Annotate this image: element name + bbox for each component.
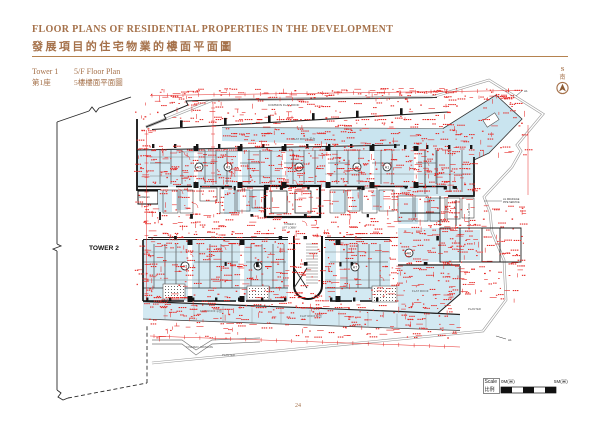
svg-text:COMMON FLAT ROOF: COMMON FLAT ROOF (468, 202, 471, 228)
svg-text:FLAT ROOF: FLAT ROOF (412, 289, 429, 293)
svg-text:A3: A3 (226, 166, 230, 170)
svg-text:LIFT LOBBY: LIFT LOBBY (282, 226, 297, 230)
svg-text:A1: A1 (524, 89, 528, 93)
svg-text:A6: A6 (407, 252, 411, 256)
svg-text:A1: A1 (508, 338, 512, 342)
svg-text:0M(米): 0M(米) (501, 378, 515, 385)
svg-text:ADI/ELEC: ADI/ELEC (139, 196, 150, 199)
svg-text:PLANTER: PLANTER (222, 353, 235, 357)
svg-text:南: 南 (559, 73, 565, 81)
svg-text:TOWER 2: TOWER 2 (89, 245, 119, 252)
svg-text:PLANTER: PLANTER (468, 307, 481, 311)
svg-text:S: S (561, 66, 565, 73)
svg-text:5M(米): 5M(米) (554, 378, 568, 385)
svg-text:COVERED LANDSCAPE: COVERED LANDSCAPE (186, 346, 213, 349)
svg-text:PIPE SERVICE: PIPE SERVICE (503, 201, 520, 204)
svg-text:COMMON FLAT ROOF: COMMON FLAT ROOF (268, 103, 300, 107)
svg-text:A1: A1 (385, 166, 389, 170)
svg-text:A7: A7 (353, 266, 357, 270)
